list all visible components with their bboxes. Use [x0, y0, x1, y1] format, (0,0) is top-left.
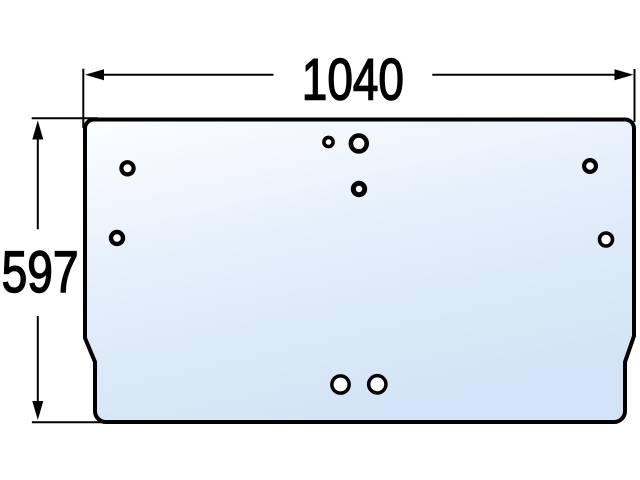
svg-text:597: 597	[2, 240, 79, 306]
svg-text:1040: 1040	[302, 47, 404, 113]
